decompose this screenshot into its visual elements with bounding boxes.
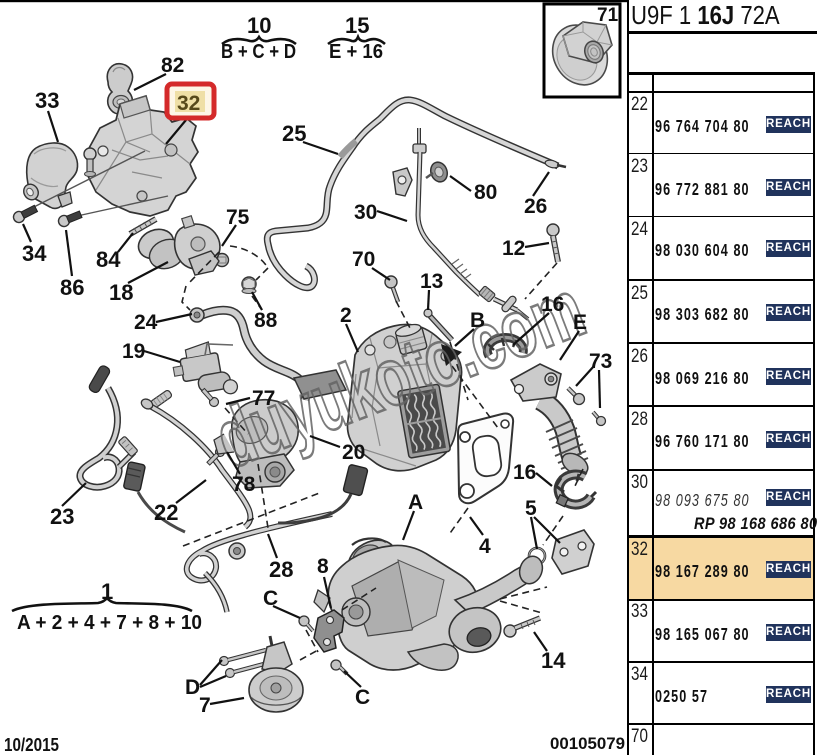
svg-text:E + 16: E + 16	[329, 41, 383, 63]
svg-text:A: A	[408, 491, 423, 514]
svg-text:B + C + D: B + C + D	[221, 41, 296, 63]
svg-text:80: 80	[474, 181, 497, 204]
svg-text:77: 77	[252, 387, 275, 410]
svg-text:19: 19	[122, 340, 145, 363]
svg-text:88: 88	[254, 309, 278, 332]
svg-text:33: 33	[35, 88, 59, 113]
svg-text:28: 28	[269, 557, 293, 582]
svg-text:13: 13	[420, 270, 443, 293]
svg-text:2: 2	[340, 304, 352, 327]
svg-text:73: 73	[589, 350, 612, 373]
svg-text:12: 12	[502, 237, 525, 260]
svg-text:7: 7	[199, 694, 211, 717]
svg-text:24: 24	[134, 311, 158, 334]
svg-text:C: C	[355, 686, 370, 709]
svg-text:8: 8	[317, 555, 329, 578]
svg-text:14: 14	[541, 648, 566, 673]
svg-text:34: 34	[22, 241, 47, 266]
svg-text:86: 86	[60, 275, 84, 300]
svg-text:16: 16	[541, 293, 564, 316]
svg-text:75: 75	[226, 206, 250, 229]
svg-text:30: 30	[354, 201, 377, 224]
svg-text:C: C	[263, 587, 278, 610]
svg-text:78: 78	[232, 473, 256, 496]
svg-text:22: 22	[154, 500, 178, 525]
svg-text:B: B	[470, 309, 485, 332]
svg-text:4: 4	[479, 535, 491, 558]
svg-text:25: 25	[282, 121, 306, 146]
svg-text:84: 84	[96, 247, 121, 272]
svg-text:A + 2 + 4 + 7 + 8 + 10: A + 2 + 4 + 7 + 8 + 10	[17, 612, 202, 634]
svg-text:23: 23	[50, 504, 74, 529]
svg-text:20: 20	[342, 441, 365, 464]
svg-text:26: 26	[524, 195, 547, 218]
svg-text:D: D	[185, 676, 200, 699]
svg-text:00105079: 00105079	[550, 734, 625, 753]
svg-text:15: 15	[345, 13, 369, 38]
svg-text:5: 5	[525, 497, 537, 520]
svg-text:70: 70	[352, 248, 375, 271]
svg-text:16: 16	[513, 461, 536, 484]
svg-text:82: 82	[161, 54, 184, 77]
svg-text:18: 18	[109, 280, 133, 305]
svg-text:10: 10	[247, 13, 271, 38]
svg-text:10/2015: 10/2015	[4, 735, 59, 755]
svg-text:32: 32	[177, 92, 200, 115]
svg-text:E: E	[573, 311, 587, 334]
svg-text:71: 71	[597, 5, 619, 26]
